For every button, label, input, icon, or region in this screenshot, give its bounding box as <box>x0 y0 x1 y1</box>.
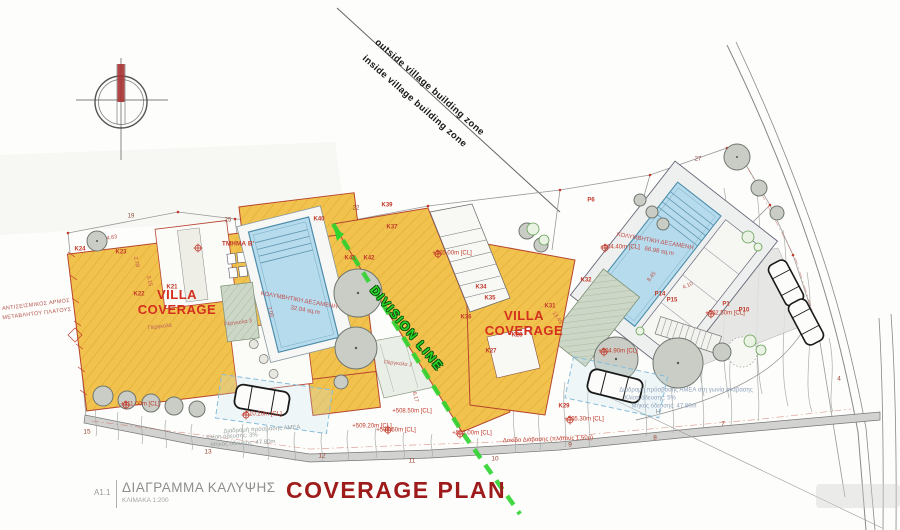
drawing-scale: ΚΛΙΜΑΚΑ 1:200 <box>122 497 169 504</box>
coverage-plan-drawing: K24K23K22K21K40K39K37K41K42K34K35K36K31K… <box>0 0 900 530</box>
drawing-title-greek: ΔΙΑΓΡΑΜΜΑ ΚΑΛΥΨΗΣ <box>122 480 276 495</box>
terrace-west <box>221 282 260 341</box>
north-arrow-icon <box>76 58 168 160</box>
sheet-number: A1.1 <box>94 488 110 497</box>
watermark <box>816 484 900 508</box>
site-plan-canvas <box>0 0 900 530</box>
zone-boundary-line <box>337 8 560 212</box>
title-block-divider <box>116 480 117 508</box>
drawing-title-english: COVERAGE PLAN <box>286 477 506 504</box>
